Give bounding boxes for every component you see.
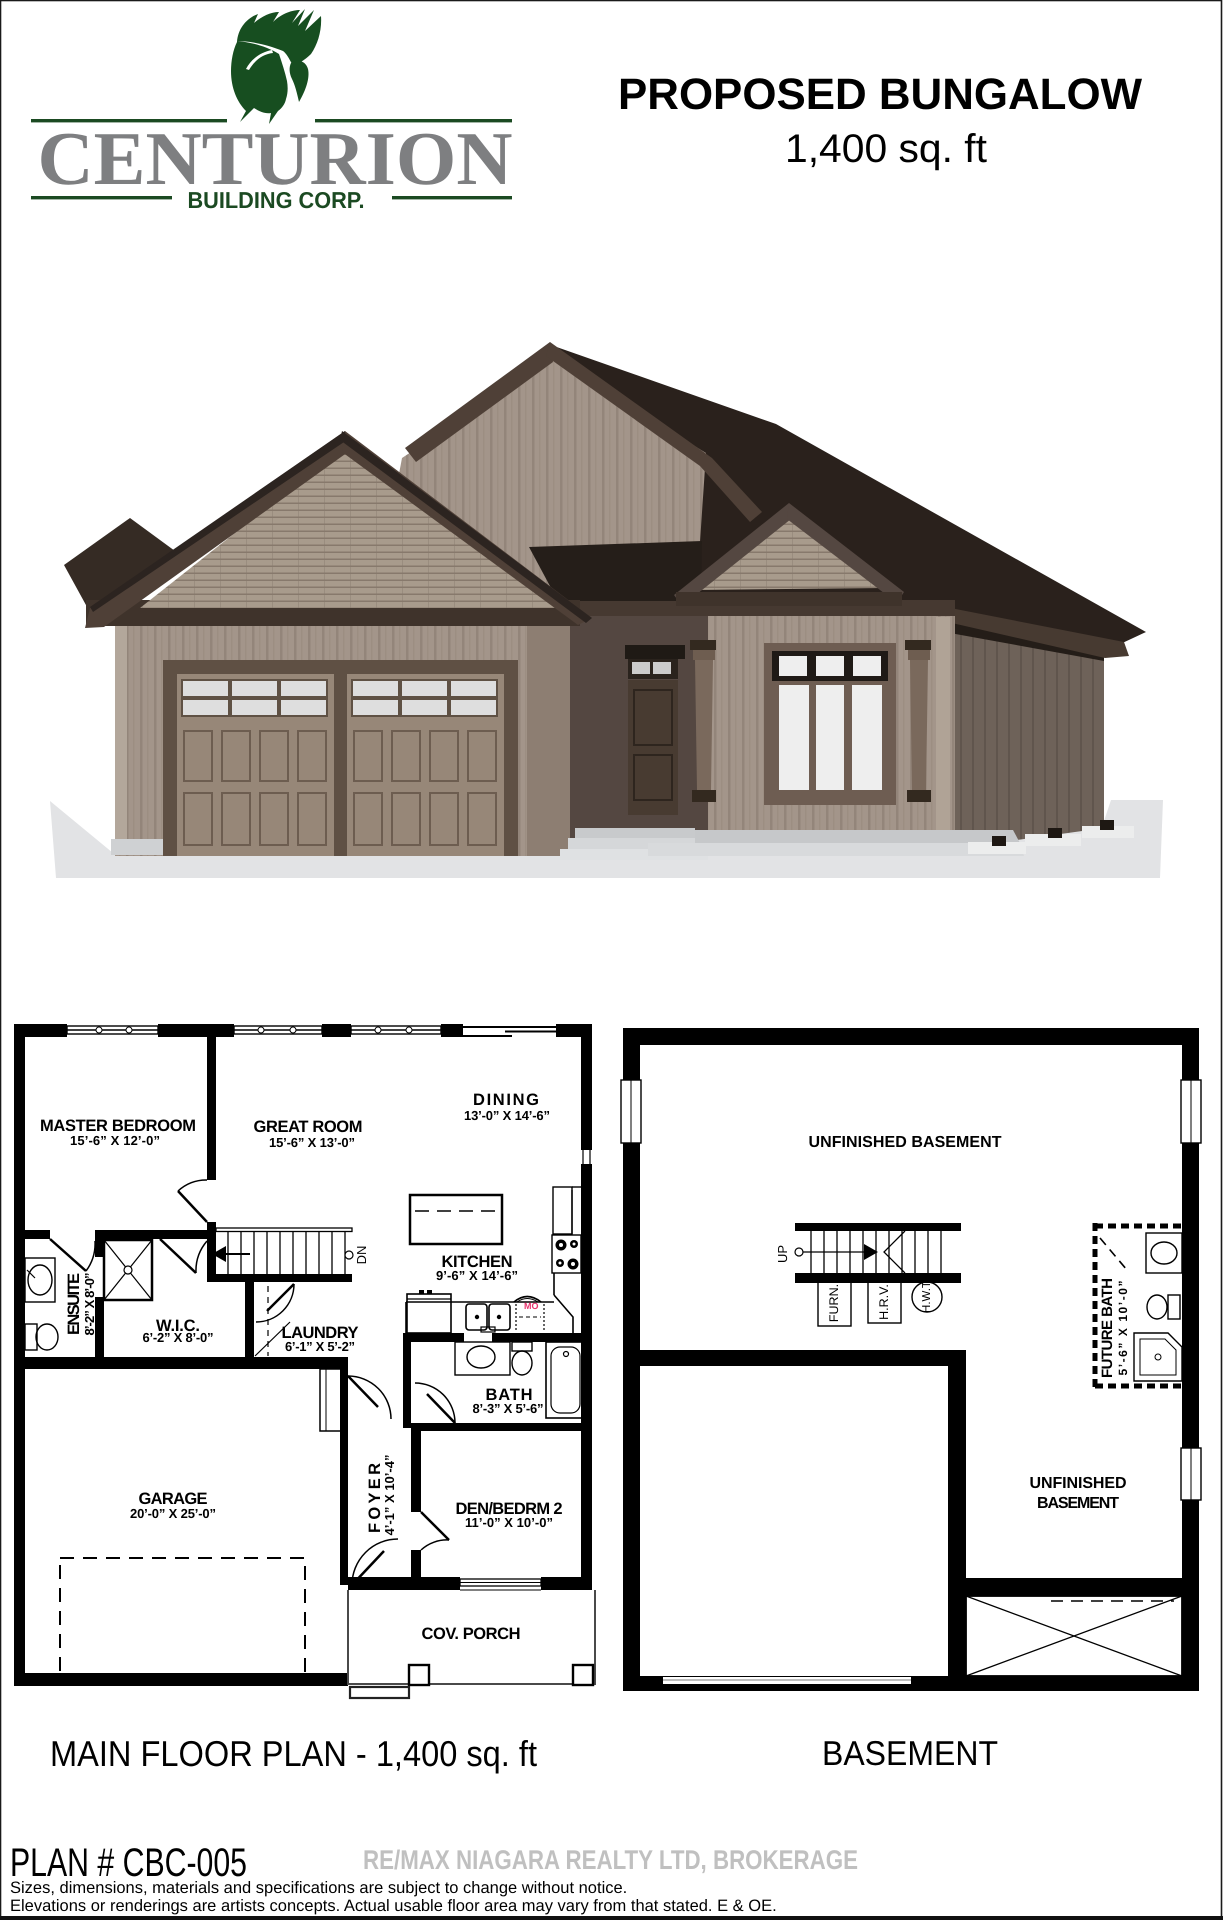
svg-text:BASEMENT: BASEMENT: [822, 1735, 998, 1773]
svg-text:MAIN FLOOR PLAN - 1,400 sq. ft: MAIN FLOOR PLAN - 1,400 sq. ft: [50, 1733, 537, 1774]
svg-text:Sizes, dimensions, materials a: Sizes, dimensions, materials and specifi…: [10, 1879, 627, 1897]
svg-text:BASEMENT: BASEMENT: [1037, 1495, 1119, 1512]
svg-text:DINING: DINING: [473, 1091, 539, 1109]
svg-text:9’-6” X 14’-6”: 9’-6” X 14’-6”: [436, 1268, 518, 1283]
svg-text:COV. PORCH: COV. PORCH: [422, 1625, 521, 1643]
svg-text:MO: MO: [524, 1301, 539, 1311]
svg-text:UNFINISHED BASEMENT: UNFINISHED BASEMENT: [809, 1134, 1002, 1151]
svg-text:GREAT ROOM: GREAT ROOM: [254, 1118, 363, 1136]
svg-text:RE/MAX NIAGARA REALTY LTD, BRO: RE/MAX NIAGARA REALTY LTD, BROKERAGE: [363, 1845, 858, 1875]
svg-text:8’-3” X 5’-6”: 8’-3” X 5’-6”: [473, 1401, 544, 1416]
svg-text:13’-0” X 14’-6”: 13’-0” X 14’-6”: [464, 1108, 550, 1123]
svg-text:8’-2” X 8’-0”: 8’-2” X 8’-0”: [82, 1273, 97, 1336]
svg-text:BUILDING CORP.: BUILDING CORP.: [188, 187, 365, 213]
svg-text:11’-0” X 10’-0”: 11’-0” X 10’-0”: [465, 1515, 553, 1530]
svg-text:FURN.: FURN.: [827, 1284, 841, 1322]
svg-text:15’-6” X 12’-0”: 15’-6” X 12’-0”: [70, 1133, 160, 1148]
svg-text:15’-6” X 13’-0”: 15’-6” X 13’-0”: [269, 1135, 355, 1150]
svg-text:UNFINISHED: UNFINISHED: [1030, 1475, 1127, 1492]
svg-text:FUTURE BATH: FUTURE BATH: [1099, 1278, 1116, 1378]
svg-text:H.R.V.: H.R.V.: [877, 1284, 891, 1320]
svg-text:6’-1” X 5’-2”: 6’-1” X 5’-2”: [285, 1339, 355, 1354]
svg-text:6’-2” X 8’-0”: 6’-2” X 8’-0”: [143, 1330, 214, 1345]
svg-text:UP: UP: [775, 1245, 790, 1263]
svg-text:20’-0” X 25’-0”: 20’-0” X 25’-0”: [130, 1506, 216, 1521]
svg-text:ENSUITE: ENSUITE: [65, 1273, 83, 1335]
svg-text:H.W.T: H.W.T: [921, 1281, 933, 1313]
svg-text:PROPOSED BUNGALOW: PROPOSED BUNGALOW: [618, 70, 1142, 119]
svg-text:1,400 sq. ft: 1,400 sq. ft: [785, 127, 987, 171]
svg-text:Elevations or renderings are a: Elevations or renderings are artists con…: [10, 1897, 777, 1915]
svg-text:DN: DN: [354, 1246, 369, 1265]
svg-text:4’-1” X 10’-4”: 4’-1” X 10’-4”: [382, 1455, 397, 1536]
